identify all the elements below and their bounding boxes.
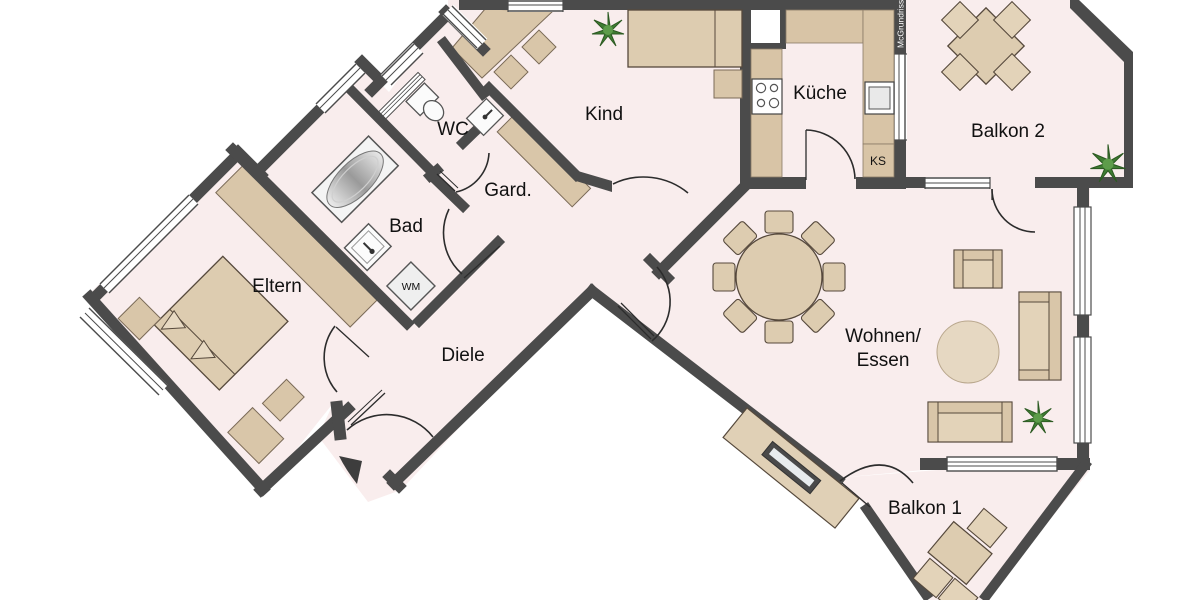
svg-text:Kind: Kind bbox=[585, 104, 623, 125]
svg-text:WC: WC bbox=[437, 119, 469, 140]
svg-text:Balkon 2: Balkon 2 bbox=[971, 121, 1045, 142]
svg-text:WM: WM bbox=[402, 281, 421, 293]
svg-text:Eltern: Eltern bbox=[252, 276, 302, 297]
svg-text:Balkon 1: Balkon 1 bbox=[888, 498, 962, 519]
svg-text:KS: KS bbox=[870, 154, 886, 168]
svg-text:Essen: Essen bbox=[857, 350, 910, 371]
svg-text:Gard.: Gard. bbox=[484, 180, 532, 201]
svg-text:Bad: Bad bbox=[389, 216, 423, 237]
svg-text:Diele: Diele bbox=[441, 345, 484, 366]
svg-text:Küche: Küche bbox=[793, 83, 847, 104]
svg-text:Wohnen/: Wohnen/ bbox=[845, 326, 921, 347]
svg-text:McGrundriss: McGrundriss bbox=[896, 0, 906, 48]
